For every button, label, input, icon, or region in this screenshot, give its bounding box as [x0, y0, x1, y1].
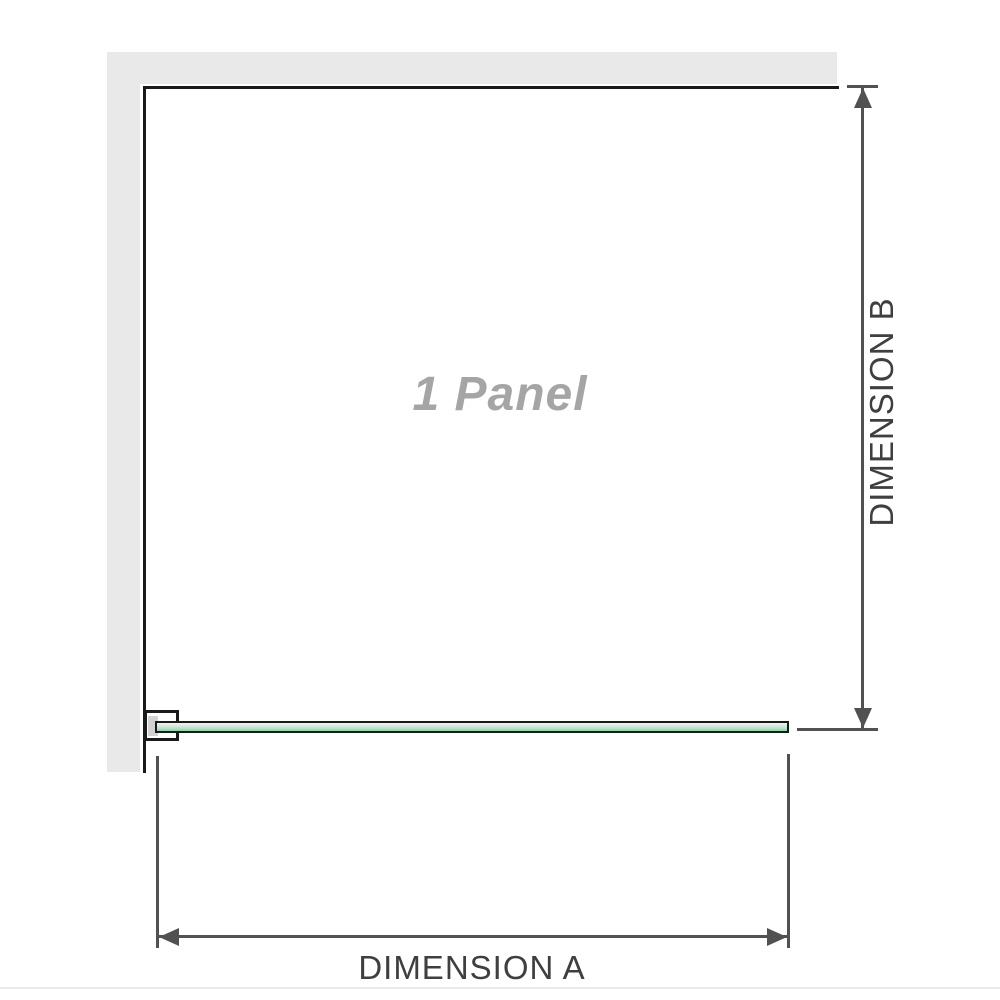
- dimension-a-extension-left: [156, 756, 159, 948]
- panel-outline-left: [143, 86, 146, 773]
- panel-outline-top: [143, 86, 839, 89]
- dimension-a-label: DIMENSION A: [272, 948, 672, 988]
- glass-panel: [155, 721, 789, 733]
- panel-count-label: 1 Panel: [300, 370, 700, 420]
- diagram-canvas: DIMENSION B DIMENSION A 1 Panel: [0, 0, 1000, 1000]
- wall-top: [107, 52, 837, 84]
- dimension-b-arrow-down-icon: [854, 708, 872, 728]
- dimension-a-line: [159, 935, 787, 938]
- dimension-a-extension-right: [787, 754, 790, 948]
- dimension-b-label: DIMENSION B: [862, 212, 902, 612]
- wall-left: [107, 52, 140, 772]
- dimension-b-tick-bottom: [797, 728, 878, 731]
- dimension-b-arrow-up-icon: [854, 88, 872, 108]
- dimension-a-arrow-right-icon: [767, 928, 787, 946]
- page-bottom-rule: [0, 987, 1000, 989]
- dimension-a-arrow-left-icon: [159, 928, 179, 946]
